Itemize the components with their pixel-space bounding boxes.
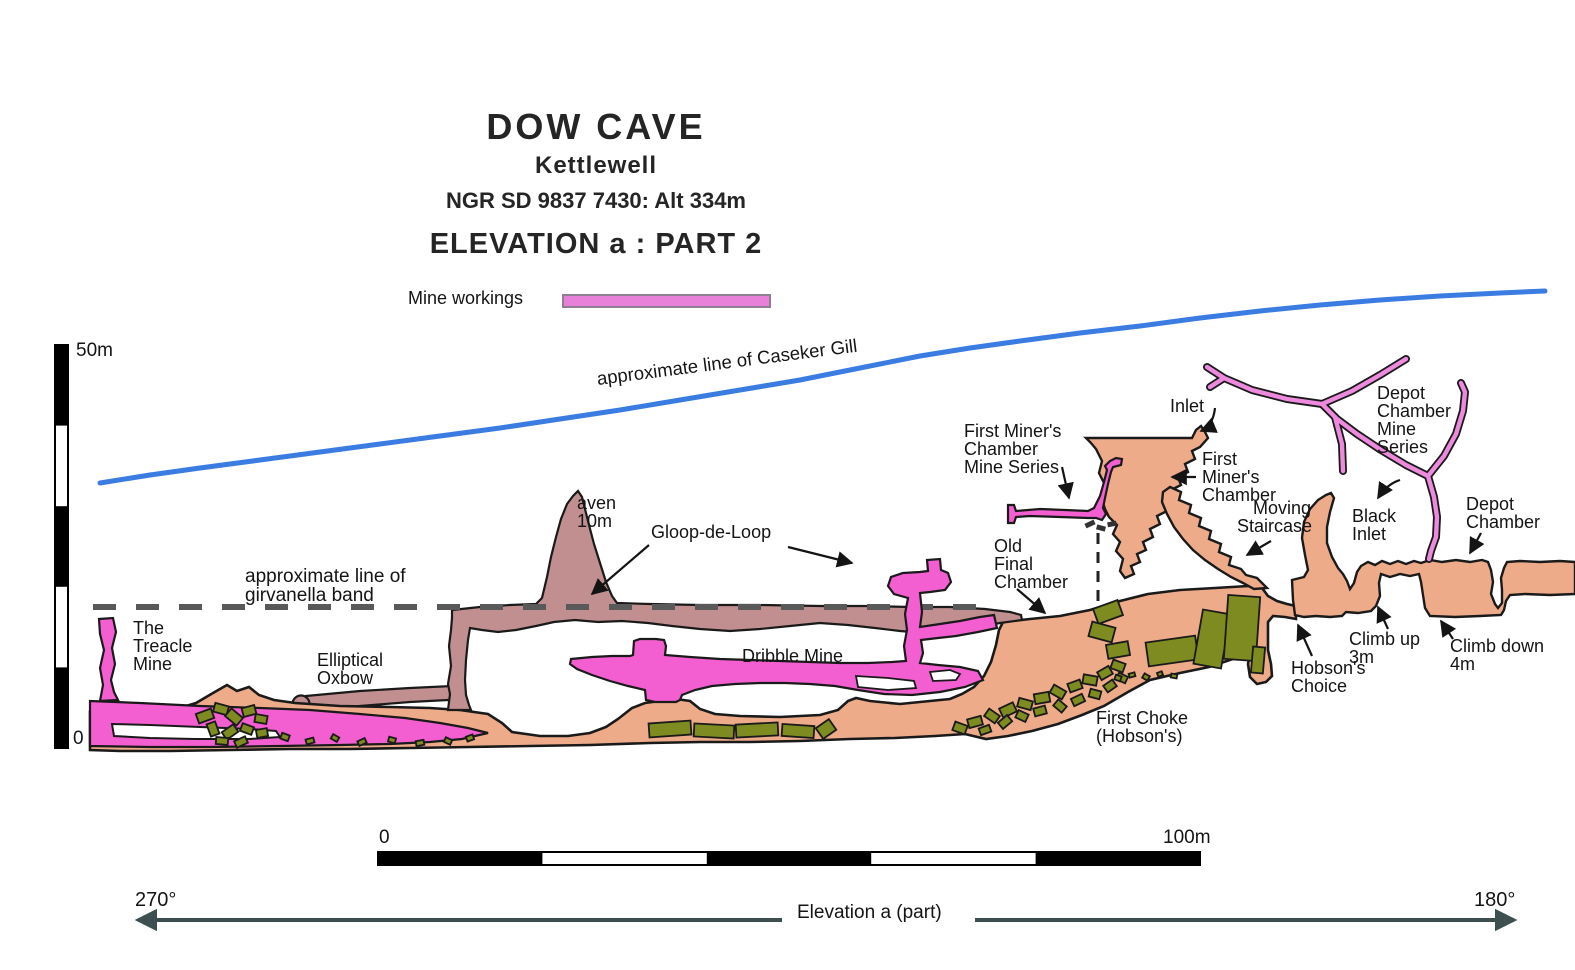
label-black-inlet-line1: Black [1352, 507, 1396, 525]
label-hobsons-line1: Hobson's [1291, 659, 1365, 677]
elevation-heading: ELEVATION a : PART 2 [396, 228, 796, 261]
label-aven-line1: aven [577, 494, 616, 512]
label-aven: aven 10m [577, 494, 616, 530]
label-fmc-series-line1: First Miner's [964, 422, 1061, 440]
label-oxbow-line1: Elliptical [317, 651, 383, 669]
treacle-mine-shaft [99, 618, 118, 701]
label-treacle-line2: Treacle [133, 637, 192, 655]
label-moving-line2: Staircase [1237, 517, 1312, 535]
label-inlet: Inlet [1170, 397, 1204, 415]
label-climb-down-4m: Climb down 4m [1450, 637, 1544, 673]
label-depot-series-line1: Depot [1377, 384, 1451, 402]
page-title: DOW CAVE [396, 106, 796, 148]
hscale-label-0: 0 [379, 828, 390, 847]
legend-label-mine-workings: Mine workings [408, 289, 523, 307]
label-hobsons-choice: Hobson's Choice [1291, 659, 1365, 695]
label-depot-series-line2: Chamber [1377, 402, 1451, 420]
label-oxbow-line2: Oxbow [317, 669, 383, 687]
label-depot-chamber-mine-series: Depot Chamber Mine Series [1377, 384, 1451, 456]
label-climb-down-line1: Climb down [1450, 637, 1544, 655]
horizontal-scale-bar [378, 852, 1200, 865]
ngr-reference: NGR SD 9837 7430: Alt 334m [396, 188, 796, 214]
label-depot-series-line3: Mine [1377, 420, 1451, 438]
label-dribble-mine: Dribble Mine [742, 647, 843, 665]
label-old-final-line2: Final [994, 555, 1068, 573]
page-subtitle: Kettlewell [396, 152, 796, 180]
elevation-caption: Elevation a (part) [797, 903, 942, 922]
label-hobsons-line2: Choice [1291, 677, 1365, 695]
bearing-label-180: 180° [1474, 890, 1515, 910]
label-first-choke-line1: First Choke [1096, 709, 1188, 727]
girvanella-label: approximate line of girvanella band [245, 567, 406, 605]
label-gloop-de-loop: Gloop-de-Loop [651, 523, 771, 541]
label-depot-chamber-line2: Chamber [1466, 513, 1540, 531]
title-block: DOW CAVE Kettlewell NGR SD 9837 7430: Al… [396, 0, 796, 280]
caseker-gill-line [100, 291, 1545, 483]
cave-survey-page: DOW CAVE Kettlewell NGR SD 9837 7430: Al… [0, 0, 1575, 970]
vertical-scale-bar [55, 345, 68, 748]
legend-swatch-mine-workings [563, 295, 770, 307]
label-fmc-line2: Miner's [1202, 468, 1276, 486]
label-first-miners-chamber: First Miner's Chamber [1202, 450, 1276, 504]
label-first-choke-line2: (Hobson's) [1096, 727, 1188, 745]
label-old-final-line3: Chamber [994, 573, 1068, 591]
label-old-final-chamber: Old Final Chamber [994, 537, 1068, 591]
label-fmc-line1: First [1202, 450, 1276, 468]
label-treacle-line1: The [133, 619, 192, 637]
label-moving-line1: Moving [1237, 499, 1312, 517]
girvanella-label-line1: approximate line of [245, 567, 406, 586]
label-black-inlet-line2: Inlet [1352, 525, 1396, 543]
vscale-label-0: 0 [73, 729, 84, 748]
label-old-final-line1: Old [994, 537, 1068, 555]
label-aven-line2: 10m [577, 512, 616, 530]
hscale-label-100m: 100m [1163, 828, 1211, 847]
label-first-miners-chamber-mine-series: First Miner's Chamber Mine Series [964, 422, 1061, 476]
label-depot-chamber: Depot Chamber [1466, 495, 1540, 531]
label-treacle-line3: Mine [133, 655, 192, 673]
label-climb-up-line1: Climb up [1349, 630, 1420, 648]
dribble-mine-inner-void-2 [930, 670, 960, 681]
vscale-label-50m: 50m [76, 341, 113, 360]
label-fmc-series-line3: Mine Series [964, 458, 1061, 476]
label-first-choke: First Choke (Hobson's) [1096, 709, 1188, 745]
label-treacle-mine: The Treacle Mine [133, 619, 192, 673]
label-elliptical-oxbow: Elliptical Oxbow [317, 651, 383, 687]
label-depot-chamber-line1: Depot [1466, 495, 1540, 513]
label-depot-series-line4: Series [1377, 438, 1451, 456]
label-fmc-series-line2: Chamber [964, 440, 1061, 458]
girvanella-label-line2: girvanella band [245, 586, 406, 605]
label-black-inlet: Black Inlet [1352, 507, 1396, 543]
bearing-label-270: 270° [135, 890, 176, 910]
label-moving-staircase: Moving Staircase [1237, 499, 1312, 535]
label-climb-down-line2: 4m [1450, 655, 1544, 673]
